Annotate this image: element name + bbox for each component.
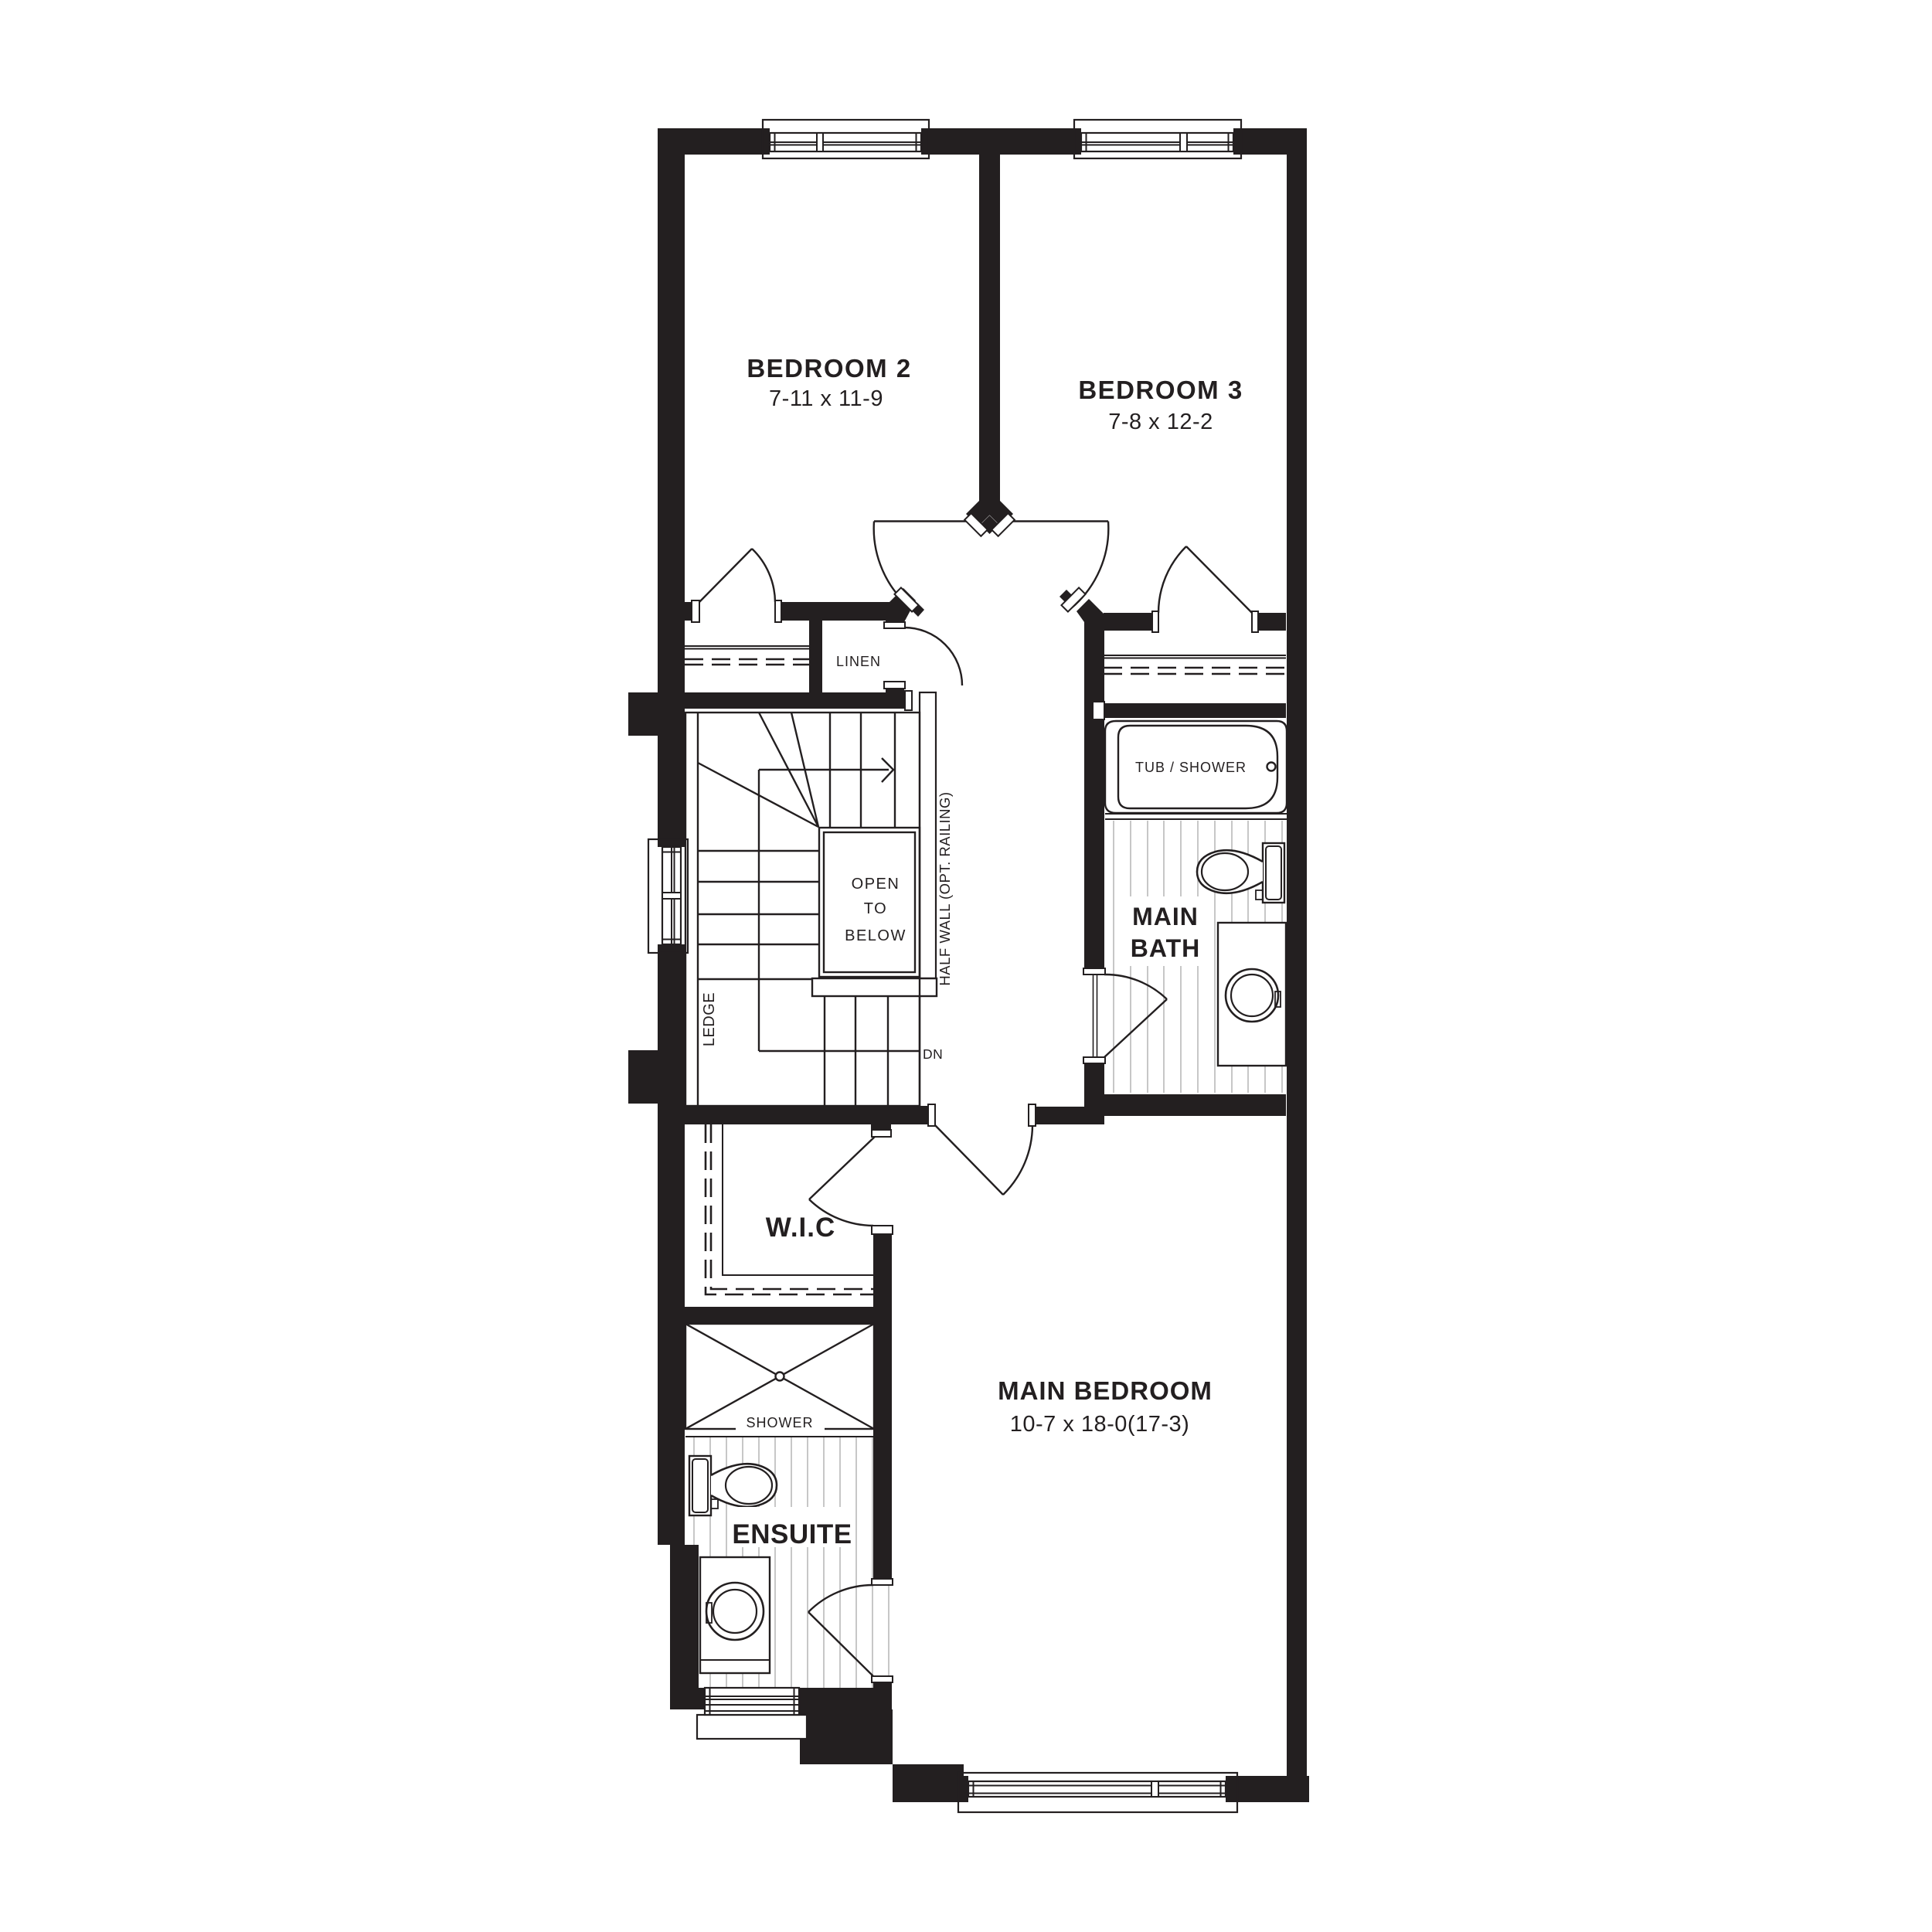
- svg-text:TO: TO: [864, 900, 887, 917]
- svg-text:W.I.C: W.I.C: [766, 1213, 836, 1243]
- svg-text:10-7 x 18-0(17-3): 10-7 x 18-0(17-3): [1010, 1412, 1190, 1437]
- svg-text:LINEN: LINEN: [836, 654, 881, 669]
- svg-text:SHOWER: SHOWER: [747, 1415, 814, 1430]
- svg-text:7-11 x 11-9: 7-11 x 11-9: [769, 386, 883, 411]
- svg-text:BEDROOM 2: BEDROOM 2: [747, 354, 911, 383]
- svg-text:MAIN: MAIN: [1132, 903, 1199, 930]
- svg-text:LEDGE: LEDGE: [701, 992, 718, 1046]
- svg-text:BEDROOM 3: BEDROOM 3: [1078, 376, 1243, 404]
- svg-text:OPEN: OPEN: [852, 876, 900, 893]
- svg-text:BATH: BATH: [1131, 934, 1201, 962]
- svg-text:HALF WALL (OPT. RAILING): HALF WALL (OPT. RAILING): [937, 791, 953, 985]
- svg-text:ENSUITE: ENSUITE: [732, 1519, 852, 1549]
- svg-text:DN: DN: [923, 1046, 943, 1062]
- svg-text:BELOW: BELOW: [845, 927, 906, 944]
- svg-text:MAIN BEDROOM: MAIN BEDROOM: [998, 1376, 1213, 1405]
- svg-text:7-8 x 12-2: 7-8 x 12-2: [1108, 410, 1213, 434]
- svg-text:TUB / SHOWER: TUB / SHOWER: [1135, 760, 1247, 775]
